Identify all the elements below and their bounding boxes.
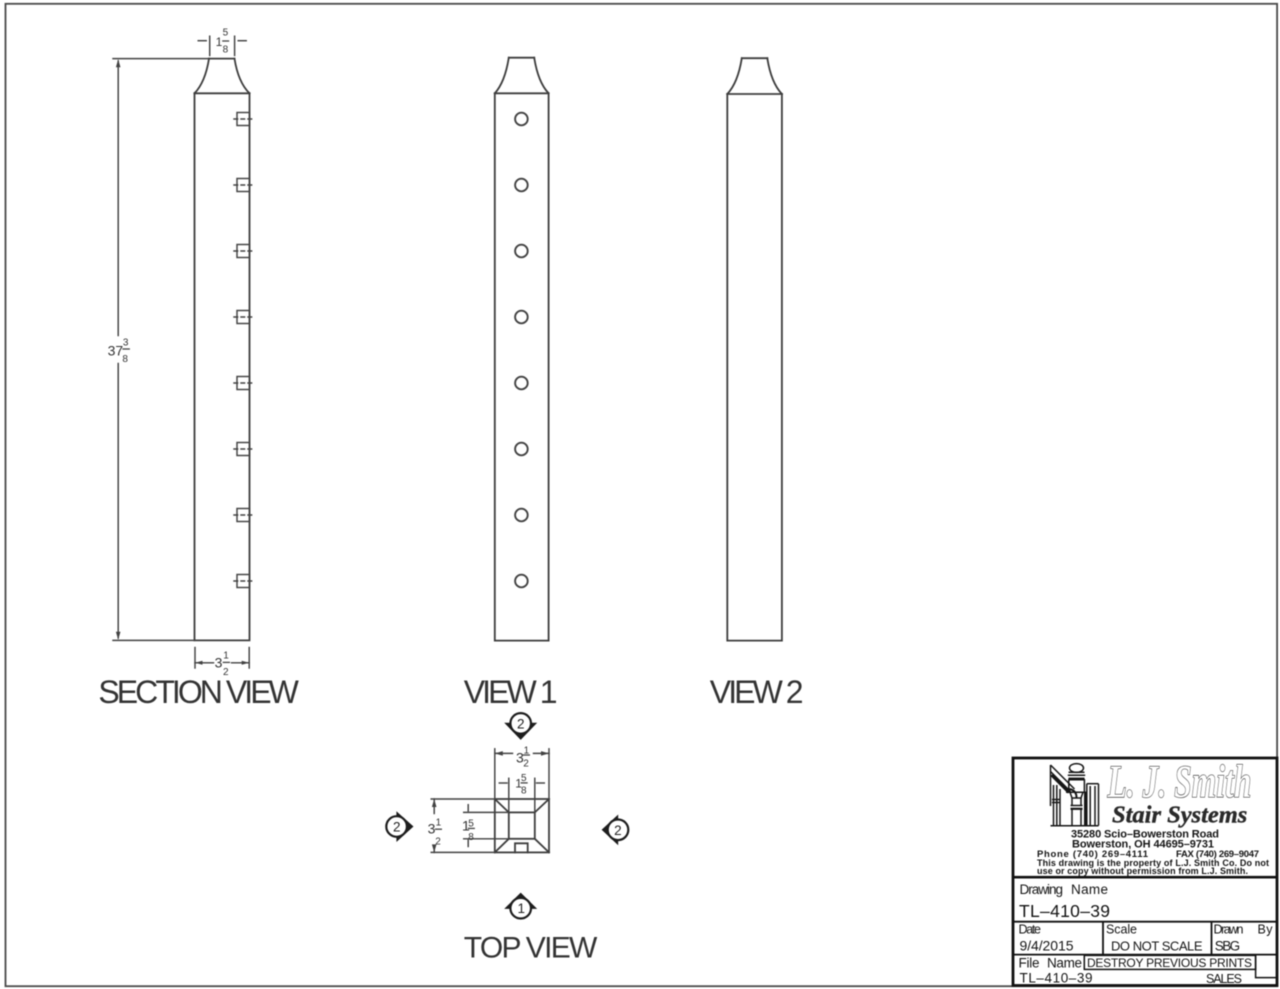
svg-text:File: File <box>1019 956 1040 971</box>
svg-text:1: 1 <box>518 901 526 916</box>
svg-text:TL–410–39: TL–410–39 <box>1020 970 1093 985</box>
svg-text:By: By <box>1258 923 1274 937</box>
svg-text:2: 2 <box>614 823 622 838</box>
svg-text:1: 1 <box>216 35 223 49</box>
svg-text:3: 3 <box>215 655 223 671</box>
svg-text:SECTION VIEW: SECTION VIEW <box>98 674 299 710</box>
svg-text:5: 5 <box>223 27 229 38</box>
svg-text:VIEW 2: VIEW 2 <box>710 674 804 710</box>
svg-text:Name: Name <box>1071 882 1108 897</box>
svg-text:8: 8 <box>122 354 128 365</box>
svg-text:TL–410–39: TL–410–39 <box>1019 901 1110 921</box>
svg-text:8: 8 <box>223 44 229 55</box>
svg-text:3: 3 <box>123 338 129 349</box>
svg-text:Drawn: Drawn <box>1214 923 1244 937</box>
svg-text:DO NOT SCALE: DO NOT SCALE <box>1111 939 1203 954</box>
svg-text:9/4/2015: 9/4/2015 <box>1020 938 1074 954</box>
svg-text:8: 8 <box>521 785 527 796</box>
svg-text:DESTROY PREVIOUS PRINTS: DESTROY PREVIOUS PRINTS <box>1087 956 1252 970</box>
svg-text:8: 8 <box>468 832 474 843</box>
svg-text:1: 1 <box>223 650 229 661</box>
svg-text:Stair Systems: Stair Systems <box>1112 802 1247 829</box>
svg-text:2: 2 <box>393 820 401 835</box>
svg-text:5: 5 <box>468 818 474 829</box>
svg-text:Date: Date <box>1019 923 1042 937</box>
svg-text:2: 2 <box>435 837 441 848</box>
svg-text:Name: Name <box>1047 956 1082 971</box>
svg-text:37: 37 <box>108 342 124 358</box>
svg-text:use or copy without permission: use or copy without permission from L.J.… <box>1037 866 1248 876</box>
svg-text:Scale: Scale <box>1106 923 1137 937</box>
svg-text:SBG: SBG <box>1215 939 1241 954</box>
svg-text:SALES: SALES <box>1206 972 1242 986</box>
svg-text:L. J. Smith: L. J. Smith <box>1107 755 1252 808</box>
svg-text:2: 2 <box>517 717 525 732</box>
svg-text:1: 1 <box>436 817 442 828</box>
svg-text:VIEW 1: VIEW 1 <box>464 674 558 710</box>
svg-text:3: 3 <box>428 820 436 836</box>
svg-text:TOP VIEW: TOP VIEW <box>464 932 598 965</box>
svg-text:2: 2 <box>523 759 529 770</box>
svg-text:Drawing: Drawing <box>1020 882 1064 897</box>
